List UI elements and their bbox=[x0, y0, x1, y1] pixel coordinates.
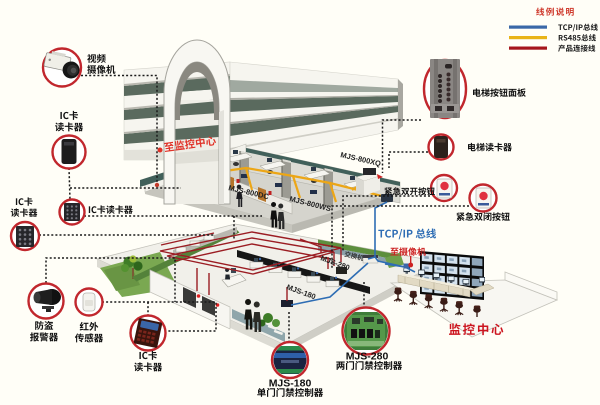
svg-text:MJS-180: MJS-180 bbox=[269, 378, 312, 390]
svg-text:MJS-280: MJS-280 bbox=[346, 351, 389, 363]
